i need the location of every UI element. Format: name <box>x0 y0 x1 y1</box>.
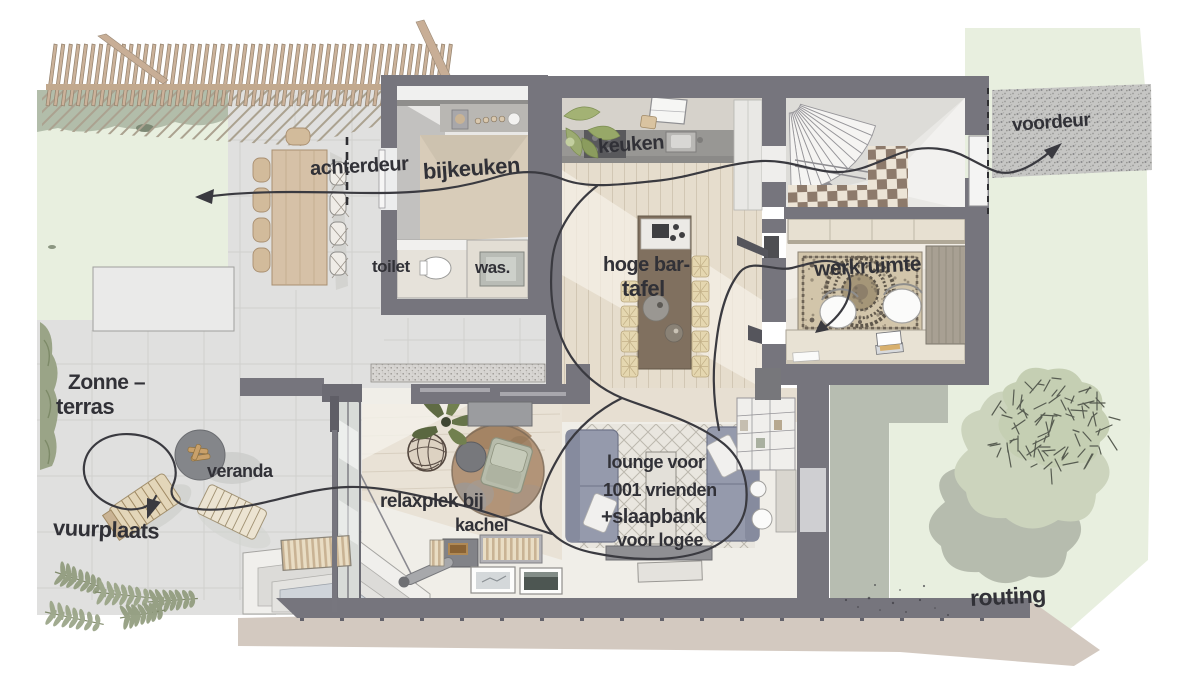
svg-text:terras: terras <box>56 394 114 419</box>
svg-text:tafel: tafel <box>622 276 665 301</box>
svg-text:veranda: veranda <box>207 461 274 481</box>
svg-text:hoge bar-: hoge bar- <box>603 254 690 276</box>
svg-text:kachel: kachel <box>455 515 508 535</box>
svg-text:routing: routing <box>969 581 1046 611</box>
svg-text:+slaapbank: +slaapbank <box>601 506 707 528</box>
svg-text:lounge voor: lounge voor <box>607 452 705 472</box>
svg-text:Zonne –: Zonne – <box>68 371 146 394</box>
svg-text:keuken: keuken <box>597 131 664 158</box>
svg-text:voor logée: voor logée <box>617 530 704 550</box>
svg-text:toilet: toilet <box>372 257 410 276</box>
svg-text:was.: was. <box>474 258 510 277</box>
svg-text:1001 vrienden: 1001 vrienden <box>603 480 717 500</box>
svg-text:relaxplek bij: relaxplek bij <box>380 491 483 512</box>
svg-text:vuurplaats: vuurplaats <box>53 515 160 544</box>
